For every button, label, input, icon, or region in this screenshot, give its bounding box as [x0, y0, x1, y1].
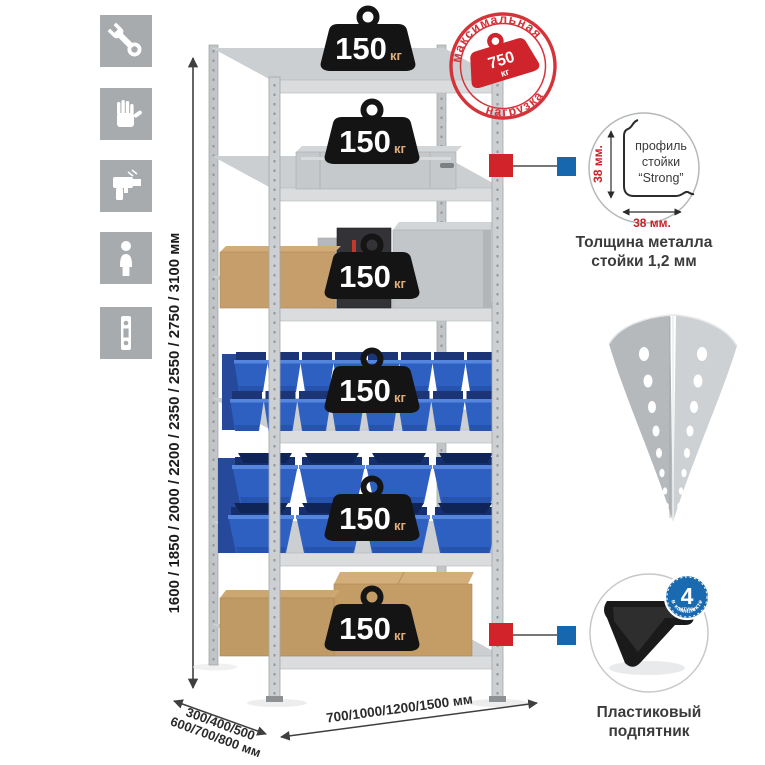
wrench-icon — [100, 15, 152, 67]
profile-label: “Strong” — [638, 171, 683, 185]
shelf-load-badge-2: 150 кг — [325, 102, 420, 165]
depth-dimension: 300/400/500 600/700/800 мм — [168, 700, 267, 760]
profile-label: профиль — [635, 139, 687, 153]
profile-connector — [489, 154, 576, 177]
load-value: 150 — [339, 124, 391, 159]
quantity-value: 4 — [681, 583, 694, 609]
load-unit: кг — [394, 276, 407, 291]
load-unit: кг — [394, 518, 407, 533]
load-value: 150 — [339, 259, 391, 294]
profile-caption: Толщина металла — [576, 234, 713, 251]
profile-horizontal-dim: 38 мм. — [633, 216, 671, 230]
load-value: 150 — [339, 373, 391, 408]
connector-blue-square — [557, 157, 576, 176]
load-unit: кг — [394, 628, 407, 643]
connector-red-square — [489, 154, 513, 177]
profile-label: стойки — [642, 155, 680, 169]
load-value: 150 — [339, 611, 391, 646]
drill-icon — [100, 160, 152, 212]
load-unit: кг — [394, 390, 407, 405]
foot-caption: подпятник — [608, 723, 689, 740]
load-unit: кг — [390, 48, 403, 63]
person-icon — [100, 232, 152, 284]
perforated-strip-icon — [100, 307, 152, 359]
load-value: 150 — [339, 501, 391, 536]
load-unit: кг — [394, 141, 407, 156]
connector-red-square — [489, 623, 513, 646]
foot-connector — [489, 623, 576, 646]
profile-vertical-dim: 38 мм. — [591, 145, 605, 183]
gloves-icon — [100, 88, 152, 140]
profile-detail: 38 мм. 38 мм. профиль стойки “Strong” То… — [576, 113, 713, 270]
assembly-icon-column — [100, 15, 152, 359]
height-dimension: 1600 / 1850 / 2000 / 2200 / 2350 / 2550 … — [166, 58, 193, 688]
angle-post-illustration — [609, 315, 737, 522]
shelf-load-badge-1: 150 кг — [321, 9, 416, 72]
foot-caption: Пластиковый — [597, 704, 702, 721]
width-dimension-label: 700/1000/1200/1500 мм — [325, 691, 473, 725]
quantity-badge: 4 штуки в комплекте — [665, 575, 709, 619]
shelving-infographic: 1600 / 1850 / 2000 / 2200 / 2350 / 2550 … — [0, 0, 765, 765]
height-dimension-label: 1600 / 1850 / 2000 / 2200 / 2350 / 2550 … — [166, 233, 183, 614]
profile-caption: стойки 1,2 мм — [591, 253, 696, 270]
infographic-svg: 1600 / 1850 / 2000 / 2200 / 2350 / 2550 … — [0, 0, 765, 765]
connector-blue-square — [557, 626, 576, 645]
plastic-foot-detail: 4 штуки в комплекте Пластиковый подпятни… — [590, 574, 709, 740]
load-value: 150 — [335, 31, 387, 66]
